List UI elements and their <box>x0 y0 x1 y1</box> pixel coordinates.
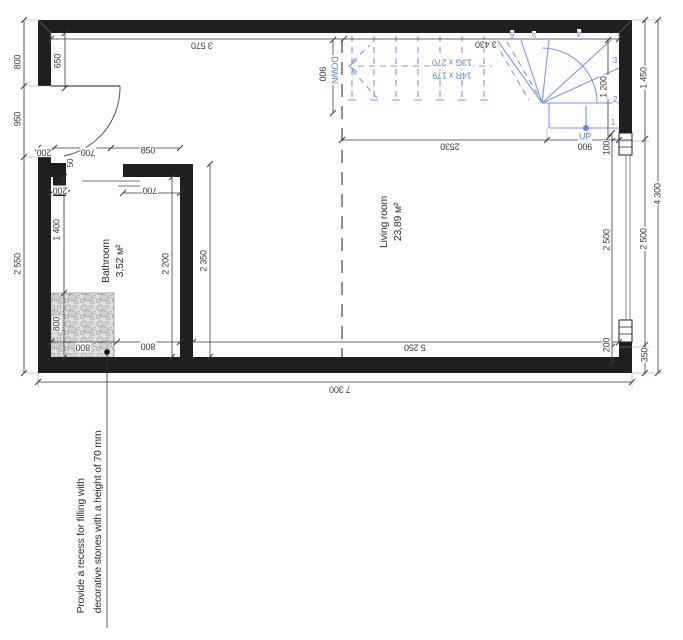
stair-step-3: 3 <box>613 57 617 65</box>
stair-step-6: 6 <box>510 30 514 38</box>
stair-risers-spec: 14R x 179 <box>431 71 472 80</box>
staircase <box>348 36 619 131</box>
dim-2350: 2 350 <box>200 249 209 273</box>
dim-extension-lines <box>24 20 663 387</box>
stair-up-label: UP <box>578 133 592 142</box>
dim-top-850: 850 <box>140 147 156 156</box>
dim-4300: 4 300 <box>654 182 663 206</box>
bathroom-threshold <box>82 181 140 186</box>
dim-7300: 7 300 <box>328 385 352 394</box>
dim-right-2500a: 2 500 <box>603 228 612 252</box>
dim-left-2550: 2 550 <box>14 252 23 276</box>
dim-1450: 1 450 <box>640 66 649 90</box>
dim-1200: 1 200 <box>600 75 609 99</box>
dim-3430: 3 430 <box>474 40 498 49</box>
dim-50: 50 <box>67 158 75 169</box>
dim-in-700: 700 <box>142 186 158 195</box>
window-symbols <box>619 133 632 342</box>
stair-step-2: 2 <box>613 96 617 104</box>
dim-bottom-800b: 800 <box>140 342 156 351</box>
dim-350: 350 <box>641 347 650 363</box>
dim-3570: 3 570 <box>190 41 214 50</box>
living-room-label: Living room 23,89 м² <box>377 195 405 249</box>
stair-upper-flight-dashed <box>352 36 541 100</box>
dim-2530: 2530 <box>439 142 460 151</box>
dim-bath-800v: 800 <box>53 316 62 332</box>
entry-door <box>51 86 120 156</box>
stones-note-line2: decorative stones with a height of 70 mm <box>90 431 107 614</box>
dim-right-200: 200 <box>603 337 612 353</box>
dim-1400: 1 400 <box>53 218 62 242</box>
stair-down-label: DOWN <box>330 55 339 85</box>
dim-650: 650 <box>54 53 63 69</box>
bathroom-label: Bathroom 3,52 м² <box>99 238 127 284</box>
dimension-lines <box>24 20 658 382</box>
dim-2200: 2 200 <box>162 252 171 276</box>
living-room-area: 23,89 м² <box>391 196 405 248</box>
bathroom-area: 3,52 м² <box>113 239 127 283</box>
stair-goings-spec: 13G x 270 <box>431 58 473 67</box>
dim-stair-900v: 900 <box>318 66 327 82</box>
living-room-name: Living room <box>377 196 391 248</box>
dim-bottom-800a: 800 <box>75 343 91 352</box>
stair-step-5: 5 <box>532 31 536 39</box>
stair-step-4: 4 <box>577 29 581 37</box>
dim-in-200: 200 <box>52 186 68 195</box>
dim-stair-900h: 900 <box>577 142 593 151</box>
dim-5250: 5 250 <box>403 343 427 352</box>
dim-right-2500b: 2 500 <box>640 227 649 251</box>
stair-step-1: 1 <box>611 119 615 127</box>
dim-left-950: 950 <box>14 111 23 127</box>
dim-top-700: 700 <box>80 148 96 157</box>
dim-left-800: 800 <box>14 54 23 70</box>
dim-right-100: 100 <box>603 140 612 156</box>
bathroom-name: Bathroom <box>99 239 113 283</box>
stones-note: Provide a recess for filling with decora… <box>73 430 107 615</box>
dim-top-200: 200 <box>36 148 52 157</box>
floor-plan-canvas: 800 950 2 550 650 3 570 3 430 200 700 85… <box>0 0 683 640</box>
stones-note-line1: Provide a recess for filling with <box>73 431 90 614</box>
dimension-ticks <box>21 17 661 385</box>
